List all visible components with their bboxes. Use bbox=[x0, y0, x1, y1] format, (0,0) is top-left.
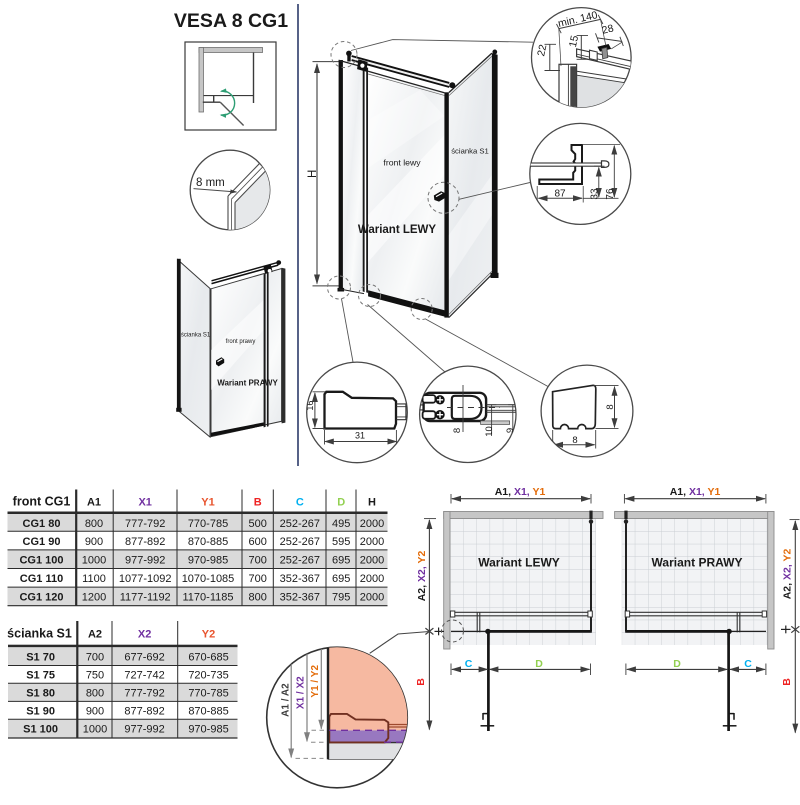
svg-text:495: 495 bbox=[332, 518, 350, 530]
svg-text:700: 700 bbox=[249, 555, 267, 567]
svg-text:770-785: 770-785 bbox=[188, 518, 228, 530]
svg-text:front lewy: front lewy bbox=[383, 158, 421, 168]
svg-text:Y1: Y1 bbox=[201, 497, 214, 509]
svg-text:A2, X2, Y2: A2, X2, Y2 bbox=[782, 549, 794, 600]
svg-text:Wariant PRAWY: Wariant PRAWY bbox=[652, 556, 743, 570]
svg-text:900: 900 bbox=[86, 705, 104, 717]
svg-text:800: 800 bbox=[85, 518, 103, 530]
svg-text:ścianka S1: ścianka S1 bbox=[181, 333, 211, 339]
svg-text:1170-1185: 1170-1185 bbox=[183, 592, 234, 604]
svg-text:8: 8 bbox=[572, 435, 577, 446]
svg-text:352-367: 352-367 bbox=[280, 573, 320, 585]
svg-text:600: 600 bbox=[249, 536, 267, 548]
svg-text:800: 800 bbox=[86, 687, 104, 699]
svg-text:CG1 100: CG1 100 bbox=[19, 555, 63, 567]
svg-text:2000: 2000 bbox=[360, 555, 384, 567]
svg-text:877-892: 877-892 bbox=[124, 705, 164, 717]
svg-text:777-792: 777-792 bbox=[125, 518, 165, 530]
svg-text:A1, X1, Y1: A1, X1, Y1 bbox=[495, 486, 546, 498]
svg-text:1100: 1100 bbox=[82, 573, 106, 585]
svg-text:8: 8 bbox=[605, 404, 616, 409]
svg-text:33: 33 bbox=[589, 188, 600, 200]
svg-text:B: B bbox=[781, 678, 793, 686]
svg-text:977-992: 977-992 bbox=[125, 555, 165, 567]
svg-text:S1 70: S1 70 bbox=[26, 652, 55, 664]
svg-text:750: 750 bbox=[86, 670, 104, 682]
svg-text:87: 87 bbox=[554, 189, 566, 200]
svg-text:A2, X2, Y2: A2, X2, Y2 bbox=[416, 551, 428, 602]
svg-text:500: 500 bbox=[249, 518, 267, 530]
svg-text:695: 695 bbox=[332, 573, 350, 585]
svg-text:C: C bbox=[296, 497, 304, 509]
svg-text:B: B bbox=[254, 497, 262, 509]
svg-text:700: 700 bbox=[249, 573, 267, 585]
svg-text:252-267: 252-267 bbox=[280, 518, 320, 530]
svg-text:1000: 1000 bbox=[82, 555, 106, 567]
svg-text:677-692: 677-692 bbox=[124, 652, 164, 664]
svg-text:D: D bbox=[535, 658, 543, 670]
svg-text:Wariant LEWY: Wariant LEWY bbox=[358, 224, 436, 236]
svg-text:1200: 1200 bbox=[82, 592, 106, 604]
svg-text:900: 900 bbox=[85, 536, 103, 548]
svg-text:1070-1085: 1070-1085 bbox=[182, 573, 235, 585]
svg-text:Wariant LEWY: Wariant LEWY bbox=[478, 556, 560, 570]
svg-text:D: D bbox=[337, 497, 345, 509]
svg-text:970-985: 970-985 bbox=[188, 724, 228, 736]
svg-text:A1 / A2: A1 / A2 bbox=[281, 683, 292, 717]
svg-text:A2: A2 bbox=[88, 628, 102, 640]
svg-text:B: B bbox=[415, 678, 427, 686]
svg-text:VESA 8 CG1: VESA 8 CG1 bbox=[174, 10, 288, 32]
svg-text:252-267: 252-267 bbox=[280, 536, 320, 548]
svg-text:720-735: 720-735 bbox=[188, 670, 228, 682]
svg-text:X1: X1 bbox=[138, 497, 151, 509]
svg-text:CG1 90: CG1 90 bbox=[23, 536, 61, 548]
svg-text:H: H bbox=[368, 497, 376, 509]
svg-text:A1: A1 bbox=[87, 497, 101, 509]
svg-text:H: H bbox=[307, 170, 319, 178]
svg-text:970-985: 970-985 bbox=[188, 555, 228, 567]
svg-text:S1 80: S1 80 bbox=[26, 687, 55, 699]
svg-text:X2: X2 bbox=[138, 628, 151, 640]
svg-text:1000: 1000 bbox=[83, 724, 107, 736]
svg-text:S1 75: S1 75 bbox=[26, 670, 55, 682]
svg-text:877-892: 877-892 bbox=[125, 536, 165, 548]
svg-text:2000: 2000 bbox=[360, 536, 384, 548]
svg-text:770-785: 770-785 bbox=[188, 687, 228, 699]
svg-text:front prawy: front prawy bbox=[226, 339, 256, 345]
svg-text:X1 / X2: X1 / X2 bbox=[296, 676, 307, 709]
svg-text:A1, X1, Y1: A1, X1, Y1 bbox=[670, 486, 721, 498]
svg-text:D: D bbox=[673, 658, 681, 670]
svg-text:CG1 110: CG1 110 bbox=[20, 573, 63, 585]
svg-text:870-885: 870-885 bbox=[188, 705, 228, 717]
svg-text:Y2: Y2 bbox=[202, 628, 215, 640]
svg-text:10: 10 bbox=[484, 426, 495, 437]
svg-text:777-792: 777-792 bbox=[124, 687, 164, 699]
svg-text:795: 795 bbox=[332, 592, 350, 604]
svg-text:8: 8 bbox=[452, 428, 463, 433]
svg-text:977-992: 977-992 bbox=[124, 724, 164, 736]
svg-text:front CG1: front CG1 bbox=[13, 495, 71, 509]
svg-text:ścianka S1: ścianka S1 bbox=[7, 626, 72, 640]
svg-text:C: C bbox=[744, 658, 752, 670]
svg-text:2000: 2000 bbox=[360, 592, 384, 604]
svg-text:S1 90: S1 90 bbox=[26, 705, 55, 717]
svg-text:2000: 2000 bbox=[360, 518, 384, 530]
svg-text:ścianka S1: ścianka S1 bbox=[451, 147, 489, 156]
svg-text:1177-1192: 1177-1192 bbox=[120, 592, 171, 604]
svg-text:76: 76 bbox=[605, 188, 616, 200]
svg-text:1077-1092: 1077-1092 bbox=[119, 573, 172, 585]
svg-text:700: 700 bbox=[86, 652, 104, 664]
svg-text:870-885: 870-885 bbox=[188, 536, 228, 548]
svg-text:Wariant PRAWY: Wariant PRAWY bbox=[217, 379, 278, 388]
svg-text:670-685: 670-685 bbox=[188, 652, 228, 664]
svg-text:CG1 120: CG1 120 bbox=[19, 592, 63, 604]
svg-text:595: 595 bbox=[332, 536, 350, 548]
svg-text:352-367: 352-367 bbox=[280, 592, 320, 604]
svg-text:8 mm: 8 mm bbox=[196, 177, 225, 189]
svg-text:31: 31 bbox=[355, 431, 365, 441]
svg-text:2000: 2000 bbox=[360, 573, 384, 585]
svg-text:CG1 80: CG1 80 bbox=[23, 518, 61, 530]
svg-text:800: 800 bbox=[249, 592, 267, 604]
svg-text:695: 695 bbox=[332, 555, 350, 567]
svg-text:727-742: 727-742 bbox=[124, 670, 164, 682]
svg-text:252-267: 252-267 bbox=[280, 555, 320, 567]
svg-text:C: C bbox=[465, 658, 473, 670]
svg-text:S1 100: S1 100 bbox=[23, 724, 58, 736]
svg-text:Y1 / Y2: Y1 / Y2 bbox=[310, 665, 321, 698]
